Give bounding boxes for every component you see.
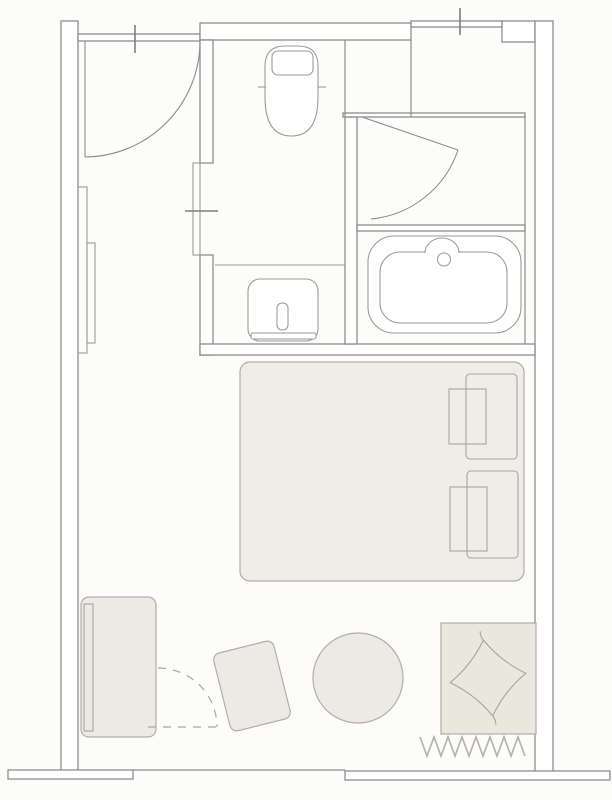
basin-front-bar — [251, 333, 316, 339]
entry-toilet-divider-lower — [200, 255, 213, 355]
right-exterior-wall — [535, 21, 553, 772]
console-desk — [81, 597, 156, 737]
bathroom-bottom-wall — [200, 344, 535, 355]
top-right-corner-wall — [502, 21, 535, 42]
shower-room-top-wall — [343, 113, 525, 117]
entry-top-wall — [78, 34, 200, 41]
toilet-tank — [272, 51, 313, 75]
round-table — [313, 633, 403, 723]
bottom-wall-left-segment — [8, 770, 133, 779]
toilet-room-top-wall — [200, 23, 411, 40]
top-window-strip — [411, 21, 502, 27]
left-exterior-wall — [61, 21, 78, 771]
bathtub-drain — [438, 253, 451, 266]
entry-toilet-divider-upper — [200, 40, 213, 163]
bottom-wall-right-segment — [345, 771, 610, 780]
floor-plan-drawing — [0, 0, 612, 800]
vanity-bath-divider-wall — [345, 117, 357, 344]
shower-tub-divider-wall — [357, 225, 525, 231]
floor-plan — [0, 0, 612, 800]
basin-faucet — [277, 303, 288, 330]
